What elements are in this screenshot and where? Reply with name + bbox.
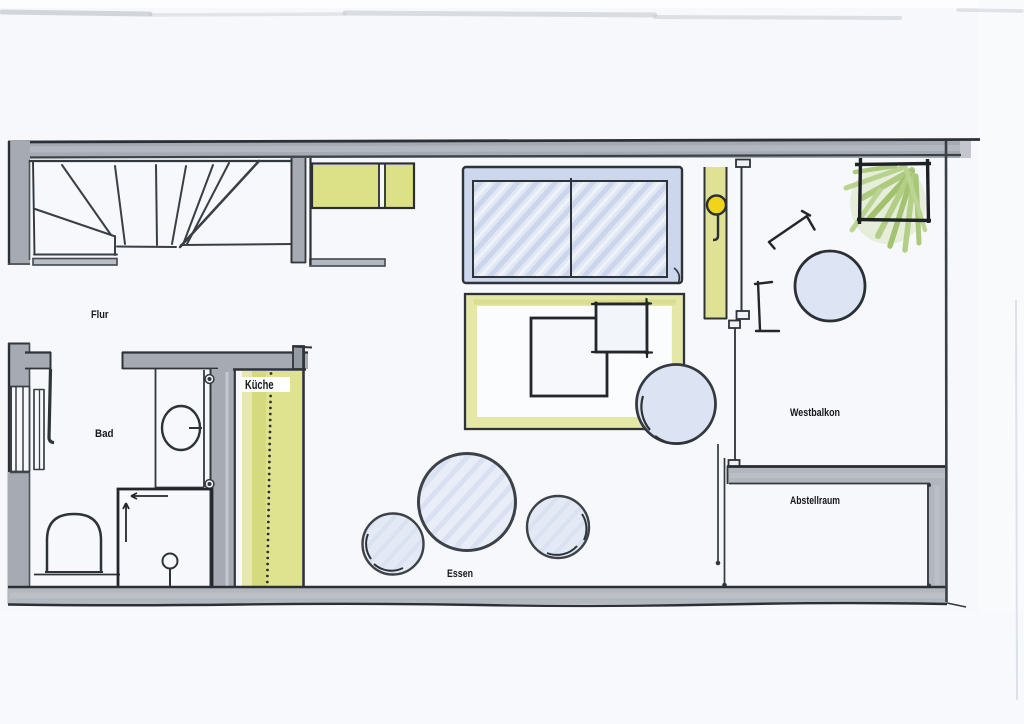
svg-text:Essen: Essen [447,568,473,580]
svg-text:Westbalkon: Westbalkon [790,407,840,419]
svg-text:Flur: Flur [91,309,109,321]
svg-text:Bad: Bad [95,428,114,440]
svg-text:Abstellraum: Abstellraum [790,495,840,507]
svg-text:Küche: Küche [245,378,274,392]
